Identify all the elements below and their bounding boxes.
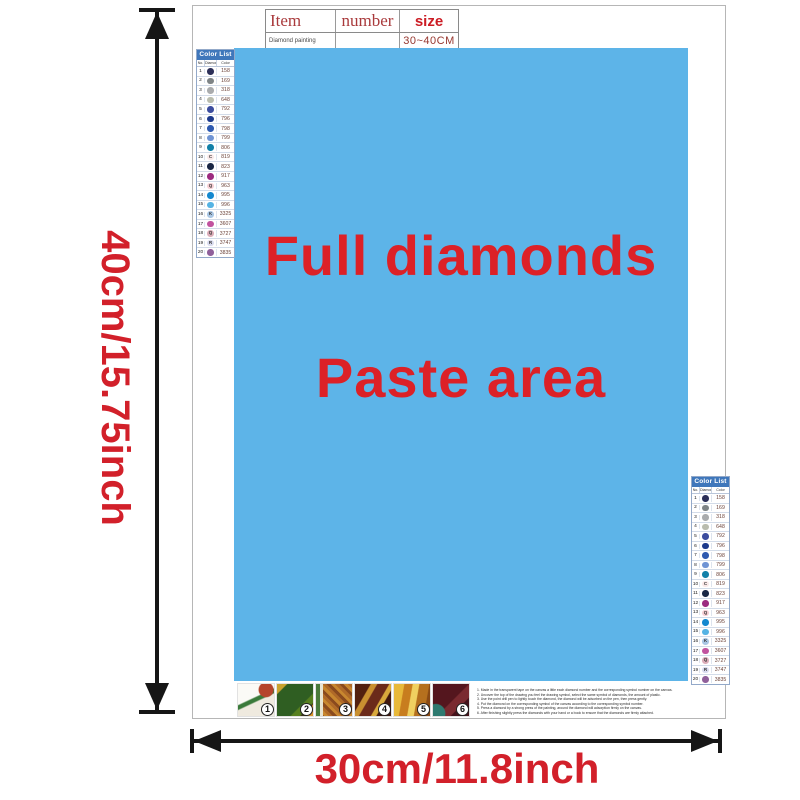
diamond-swatch-cell [700,514,712,521]
colorlist-dmc-code: 158 [217,68,234,74]
colorlist-column-header: No. [197,60,205,66]
colorlist-row-number: 13 [197,183,205,188]
diamond-swatch-cell: R [700,667,712,674]
diamond-color-swatch-icon: C [702,581,709,588]
height-dimension-label: 40cm/15.75inch [91,222,135,534]
colorlist-row: 1158 [197,67,234,76]
colorlist-dmc-code: 799 [217,135,234,141]
colorlist-row-number: 20 [692,677,700,682]
colorlist-row: 4648 [692,522,729,532]
colorlist-row-number: 18 [692,658,700,663]
colorlist-row: 6796 [692,541,729,551]
diamond-swatch-cell [700,562,712,569]
colorlist-row-number: 7 [692,553,700,558]
colorlist-dmc-code: 995 [217,192,234,198]
diamond-color-swatch-icon: Q [207,183,214,190]
colorlist-dmc-code: 796 [217,116,234,122]
colorlist-row: 11823 [692,588,729,598]
colorlist-row-number: 8 [692,563,700,568]
colorlist-row-number: 2 [692,505,700,510]
diamond-color-swatch-icon [207,97,214,104]
step-photo: 6 [432,683,470,717]
diamond-color-swatch-icon: Q [702,657,709,664]
colorlist-row: 203835 [197,247,234,257]
colorlist-row: 2169 [692,503,729,513]
number-value-cell [336,33,400,48]
diamond-color-swatch-icon [207,249,214,256]
arrow-end-cap [718,729,722,753]
diamond-swatch-cell [700,648,712,655]
colorlist-row-number: 19 [197,241,205,246]
colorlist-dmc-code: 996 [712,629,729,635]
paste-area: Full diamonds Paste area [234,48,688,681]
diamond-color-swatch-icon [207,68,214,75]
colorlist-row: 19R3747 [197,238,234,248]
diamond-swatch-cell [205,87,217,94]
diamond-swatch-cell [700,571,712,578]
diamond-swatch-cell [205,163,217,170]
colorlist-row-number: 7 [197,126,205,131]
colorlist-row: 2169 [197,76,234,86]
instruction-text-block: 1. Made in the transparent tape on the c… [477,688,695,716]
colorlist-row-number: 14 [692,620,700,625]
colorlist-column-header: Diamond [700,487,712,493]
colorlist-dmc-code: 3835 [217,250,234,256]
colorlist-row: 1158 [692,494,729,503]
colorlist-row: 12917 [692,598,729,608]
colorlist-row: 9806 [692,569,729,579]
colorlist-row-number: 6 [692,544,700,549]
colorlist-dmc-code: 3607 [217,221,234,227]
colorlist-dmc-code: 3727 [712,658,729,664]
vertical-dimension-arrow [139,8,175,714]
item-table-header-row: Item number size [266,10,458,33]
diamond-color-swatch-icon [207,106,214,113]
colorlist-row-number: 15 [197,202,205,207]
colorlist-row: 15996 [197,200,234,210]
colorlist-dmc-code: 3325 [712,638,729,644]
colorlist-row: 8799 [692,560,729,570]
diamond-color-swatch-icon [702,533,709,540]
diamond-swatch-cell: Q [205,183,217,190]
diamond-color-swatch-icon [702,514,709,521]
diamond-color-swatch-icon [207,135,214,142]
colorlist-row: 10C819 [692,579,729,589]
diamond-color-swatch-icon [207,87,214,94]
product-spec-image: 40cm/15.75inch 30cm/11.8inch Item number… [0,0,800,800]
diamond-swatch-cell: C [205,154,217,161]
step-number-badge: 5 [417,703,430,716]
diamond-color-swatch-icon [702,600,709,607]
arrowhead-down-icon [145,683,169,710]
colorlist-row: 14995 [197,190,234,200]
colorlist-row-number: 6 [197,117,205,122]
diamond-swatch-cell [700,524,712,531]
diamond-color-swatch-icon: K [702,638,709,645]
colorlist-row-number: 15 [692,629,700,634]
step-photo: 3 [315,683,353,717]
colorlist-dmc-code: 823 [712,591,729,597]
colorlist-dmc-code: 806 [712,572,729,578]
diamond-swatch-cell: K [205,211,217,218]
colorlist-row: 18Q3727 [692,655,729,665]
step-photo: 2 [276,683,314,717]
size-value-cell: 30~40CM [400,33,458,48]
step-number-badge: 2 [300,703,313,716]
item-header-cell: Item [266,10,336,32]
arrowhead-right-icon [691,730,718,752]
diamond-color-swatch-icon: Q [207,230,214,237]
diamond-color-swatch-icon [207,202,214,209]
color-list-left: Color List No.DiamondColor 1158216933184… [196,49,235,258]
diamond-swatch-cell [205,192,217,199]
diamond-swatch-cell [700,495,712,502]
colorlist-row: 10C819 [197,152,234,162]
diamond-color-swatch-icon: C [207,154,214,161]
colorlist-column-header: No. [692,487,700,493]
canvas-sheet: Item number size Diamond painting 30~40C… [192,5,726,719]
colorlist-row-number: 12 [197,174,205,179]
colorlist-row-number: 17 [692,649,700,654]
paste-area-title: Full diamonds [234,228,688,284]
colorlist-row: 7798 [692,550,729,560]
colorlist-row: 13Q963 [692,608,729,618]
colorlist-dmc-code: 169 [712,505,729,511]
colorlist-dmc-code: 796 [712,543,729,549]
colorlist-row-number: 10 [197,155,205,160]
diamond-swatch-cell [700,629,712,636]
colorlist-dmc-code: 648 [217,97,234,103]
colorlist-dmc-code: 3747 [712,667,729,673]
color-list-title: Color List [692,477,729,487]
colorlist-row-number: 11 [197,164,205,169]
diamond-color-swatch-icon: Q [702,610,709,617]
diamond-swatch-cell [205,97,217,104]
colorlist-dmc-code: 318 [217,87,234,93]
diamond-swatch-cell [205,106,217,113]
width-dimension-label: 30cm/11.8inch [272,748,642,790]
colorlist-row-number: 2 [197,78,205,83]
diamond-color-swatch-icon [702,676,709,683]
colorlist-row: 14995 [692,617,729,627]
diamond-color-swatch-icon [207,163,214,170]
diamond-swatch-cell [205,144,217,151]
step-photo: 1 [237,683,275,717]
colorlist-dmc-code: 995 [712,619,729,625]
diamond-swatch-cell [700,590,712,597]
diamond-color-swatch-icon [207,173,214,180]
colorlist-row-number: 16 [692,639,700,644]
colorlist-dmc-code: 798 [712,553,729,559]
diamond-swatch-cell: C [700,581,712,588]
colorlist-row-number: 3 [692,515,700,520]
colorlist-row: 19R3747 [692,665,729,675]
colorlist-dmc-code: 169 [217,78,234,84]
diamond-color-swatch-icon [702,562,709,569]
colorlist-dmc-code: 318 [712,514,729,520]
colorlist-dmc-code: 819 [712,581,729,587]
arrow-line [155,11,159,711]
instruction-line: 1. Made in the transparent tape on the c… [477,688,695,693]
colorlist-dmc-code: 3835 [712,677,729,683]
colorlist-row-number: 9 [692,572,700,577]
colorlist-dmc-code: 3727 [217,231,234,237]
paste-area-subtitle: Paste area [234,350,688,406]
diamond-swatch-cell [700,600,712,607]
colorlist-row: 12917 [197,171,234,181]
colorlist-dmc-code: 917 [217,173,234,179]
diamond-swatch-cell [205,116,217,123]
colorlist-row: 7798 [197,123,234,133]
colorlist-dmc-code: 823 [217,164,234,170]
item-value-cell: Diamond painting [266,33,336,48]
colorlist-row: 18Q3727 [197,228,234,238]
colorlist-row-number: 5 [692,534,700,539]
number-header-cell: number [336,10,400,32]
diamond-swatch-cell [205,135,217,142]
colorlist-row-number: 12 [692,601,700,606]
diamond-swatch-cell [205,221,217,228]
colorlist-row-number: 19 [692,668,700,673]
colorlist-row-number: 4 [692,524,700,529]
colorlist-row-number: 4 [197,97,205,102]
colorlist-row: 16K3325 [692,636,729,646]
colorlist-row: 5792 [197,104,234,114]
item-info-table: Item number size Diamond painting 30~40C… [265,9,459,49]
colorlist-dmc-code: 806 [217,145,234,151]
colorlist-row-number: 20 [197,250,205,255]
diamond-color-swatch-icon [702,524,709,531]
colorlist-row: 5792 [692,531,729,541]
step-photo: 4 [354,683,392,717]
color-list-column-headers: No.DiamondColor [692,487,729,494]
diamond-swatch-cell: K [700,638,712,645]
diamond-color-swatch-icon [207,125,214,132]
colorlist-dmc-code: 648 [712,524,729,530]
arrow-end-cap [139,710,175,714]
color-list-column-headers: No.DiamondColor [197,60,234,67]
diamond-swatch-cell [205,68,217,75]
diamond-color-swatch-icon [702,648,709,655]
diamond-swatch-cell [700,543,712,550]
diamond-swatch-cell: R [205,240,217,247]
colorlist-row: 173607 [197,219,234,229]
color-list-title: Color List [197,50,234,60]
colorlist-row-number: 11 [692,591,700,596]
instruction-line: 6. After finishing slightly press the di… [477,711,695,716]
diamond-color-swatch-icon [702,619,709,626]
diamond-swatch-cell: Q [205,230,217,237]
diamond-swatch-cell: Q [700,657,712,664]
colorlist-row-number: 14 [197,193,205,198]
diamond-color-swatch-icon: R [207,240,214,247]
colorlist-dmc-code: 792 [217,106,234,112]
colorlist-row-number: 1 [692,496,700,501]
colorlist-row-number: 10 [692,582,700,587]
colorlist-row: 8799 [197,133,234,143]
diamond-swatch-cell [700,505,712,512]
colorlist-row-number: 17 [197,222,205,227]
colorlist-dmc-code: 3747 [217,240,234,246]
colorlist-dmc-code: 917 [712,600,729,606]
colorlist-column-header: Color [217,60,234,66]
colorlist-dmc-code: 963 [712,610,729,616]
diamond-color-swatch-icon [702,629,709,636]
step-number-badge: 4 [378,703,391,716]
colorlist-dmc-code: 799 [712,562,729,568]
diamond-color-swatch-icon [207,144,214,151]
colorlist-row: 173607 [692,646,729,656]
colorlist-row-number: 16 [197,212,205,217]
diamond-color-swatch-icon: K [207,211,214,218]
color-list-body: 11582169331846485792679677988799980610C8… [197,67,234,257]
colorlist-row: 13Q963 [197,181,234,191]
colorlist-row: 16K3325 [197,209,234,219]
diamond-color-swatch-icon [702,552,709,559]
diamond-swatch-cell [700,619,712,626]
colorlist-row: 3318 [692,512,729,522]
diamond-swatch-cell [700,676,712,683]
step-number-badge: 1 [261,703,274,716]
colorlist-row: 6796 [197,114,234,124]
step-number-badge: 6 [456,703,469,716]
colorlist-row-number: 8 [197,136,205,141]
diamond-color-swatch-icon [702,495,709,502]
size-header-cell: size [400,10,458,32]
colorlist-dmc-code: 3607 [712,648,729,654]
step-number-badge: 3 [339,703,352,716]
colorlist-dmc-code: 819 [217,154,234,160]
colorlist-dmc-code: 158 [712,495,729,501]
diamond-swatch-cell [205,78,217,85]
colorlist-dmc-code: 798 [217,126,234,132]
diamond-swatch-cell [700,533,712,540]
colorlist-row: 3318 [197,85,234,95]
diamond-swatch-cell [205,125,217,132]
colorlist-row-number: 9 [197,145,205,150]
diamond-color-swatch-icon [702,571,709,578]
colorlist-row: 9806 [197,142,234,152]
colorlist-column-header: Color [712,487,729,493]
colorlist-row-number: 3 [197,88,205,93]
colorlist-row: 4648 [197,95,234,105]
diamond-color-swatch-icon [702,590,709,597]
colorlist-row-number: 5 [197,107,205,112]
colorlist-row-number: 18 [197,231,205,236]
arrow-line [193,739,719,743]
colorlist-row: 203835 [692,674,729,684]
colorlist-row-number: 13 [692,610,700,615]
colorlist-row: 11823 [197,161,234,171]
diamond-color-swatch-icon [702,505,709,512]
diamond-color-swatch-icon [207,192,214,199]
step-photos-strip: 123456 [237,683,470,717]
colorlist-row: 15996 [692,627,729,637]
colorlist-column-header: Diamond [205,60,217,66]
item-table-value-row: Diamond painting 30~40CM [266,33,458,48]
diamond-color-swatch-icon [207,116,214,123]
diamond-swatch-cell [700,552,712,559]
diamond-color-swatch-icon [702,543,709,550]
colorlist-dmc-code: 996 [217,202,234,208]
diamond-swatch-cell [205,249,217,256]
diamond-swatch-cell [205,202,217,209]
diamond-swatch-cell: Q [700,610,712,617]
color-list-right: Color List No.DiamondColor 1158216933184… [691,476,730,685]
colorlist-dmc-code: 3325 [217,211,234,217]
colorlist-row-number: 1 [197,69,205,74]
diamond-color-swatch-icon [207,221,214,228]
diamond-swatch-cell [205,173,217,180]
color-list-body: 11582169331846485792679677988799980610C8… [692,494,729,684]
diamond-color-swatch-icon: R [702,667,709,674]
colorlist-dmc-code: 963 [217,183,234,189]
diamond-color-swatch-icon [207,78,214,85]
colorlist-dmc-code: 792 [712,533,729,539]
step-photo: 5 [393,683,431,717]
